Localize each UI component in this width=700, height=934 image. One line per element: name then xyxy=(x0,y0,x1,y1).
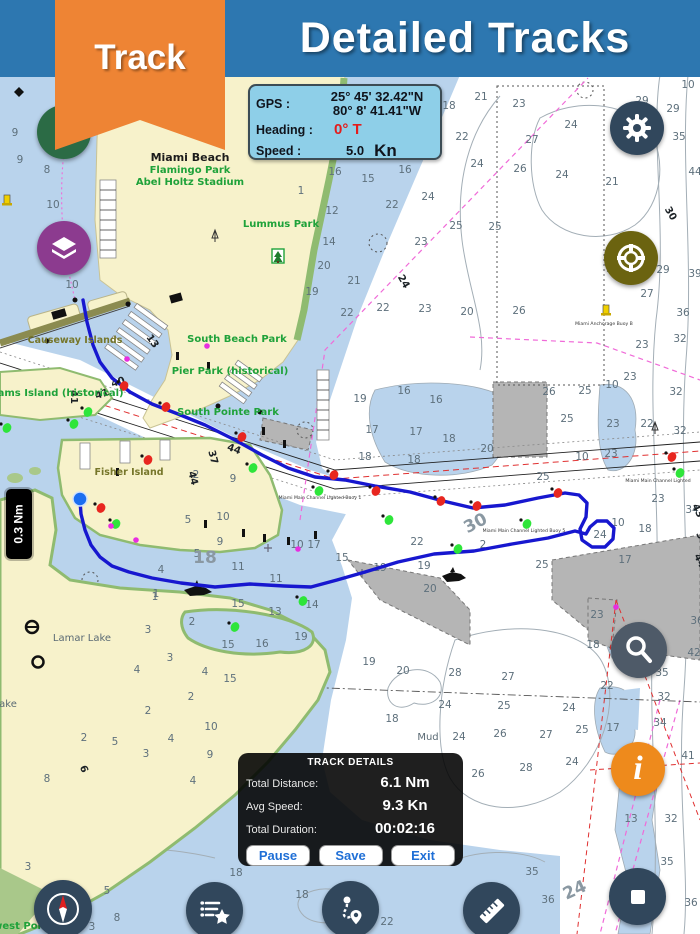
svg-text:23: 23 xyxy=(512,98,525,110)
svg-text:8: 8 xyxy=(44,164,51,176)
svg-text:25: 25 xyxy=(560,413,573,425)
svg-text:18: 18 xyxy=(193,548,217,568)
svg-text:36: 36 xyxy=(690,615,700,627)
svg-text:South Beach Park: South Beach Park xyxy=(187,334,287,345)
heading-value: 0° T xyxy=(334,121,362,138)
svg-text:35: 35 xyxy=(525,866,538,878)
svg-text:10: 10 xyxy=(46,199,59,211)
route-pin-icon xyxy=(333,892,369,928)
gps-label: GPS : xyxy=(256,97,320,111)
distance-value: 6.1 Nm xyxy=(355,774,455,791)
svg-text:4: 4 xyxy=(158,564,165,576)
svg-text:22: 22 xyxy=(385,199,398,211)
svg-text:32: 32 xyxy=(657,691,670,703)
svg-text:Miami Main Channel Lighted Buo: Miami Main Channel Lighted Buoy 1 xyxy=(279,495,362,501)
svg-text:South Pointe Park: South Pointe Park xyxy=(177,407,279,418)
svg-text:22: 22 xyxy=(376,302,389,314)
svg-text:21: 21 xyxy=(605,176,618,188)
svg-text:18: 18 xyxy=(442,100,455,112)
svg-text:3: 3 xyxy=(143,748,150,760)
svg-text:27: 27 xyxy=(501,671,514,683)
exit-button[interactable]: Exit xyxy=(391,845,455,866)
svg-text:17: 17 xyxy=(618,554,631,566)
compass-button[interactable] xyxy=(34,880,92,934)
track-list-button[interactable] xyxy=(186,882,243,934)
svg-text:10: 10 xyxy=(605,379,618,391)
svg-text:24: 24 xyxy=(565,756,579,768)
svg-text:15: 15 xyxy=(335,552,348,564)
svg-text:2: 2 xyxy=(188,691,195,703)
svg-text:24: 24 xyxy=(593,529,607,541)
svg-text:16: 16 xyxy=(429,394,443,406)
svg-text:18: 18 xyxy=(229,867,242,879)
ribbon-label: Track xyxy=(55,38,225,78)
info-icon: i xyxy=(633,752,642,786)
svg-text:Miami Main Channel Lighted: Miami Main Channel Lighted xyxy=(625,478,690,484)
svg-text:20: 20 xyxy=(460,306,473,318)
svg-text:24: 24 xyxy=(564,119,578,131)
svg-text:2: 2 xyxy=(81,732,88,744)
heading-label: Heading : xyxy=(256,123,320,137)
svg-text:10: 10 xyxy=(204,721,217,733)
svg-text:32: 32 xyxy=(664,813,677,825)
svg-text:22: 22 xyxy=(455,131,468,143)
svg-text:26: 26 xyxy=(493,728,507,740)
svg-text:24: 24 xyxy=(452,731,466,743)
svg-text:25: 25 xyxy=(449,220,462,232)
stop-square-icon xyxy=(620,879,656,915)
svg-text:29: 29 xyxy=(666,103,679,115)
duration-value: 00:02:16 xyxy=(355,820,455,837)
svg-text:10: 10 xyxy=(216,511,229,523)
svg-text:23: 23 xyxy=(604,448,617,460)
measure-button[interactable] xyxy=(463,882,520,934)
gear-icon xyxy=(620,111,654,145)
svg-text:23: 23 xyxy=(590,609,603,621)
svg-text:21: 21 xyxy=(474,91,487,103)
layers-icon xyxy=(47,231,81,265)
svg-text:5: 5 xyxy=(104,885,111,897)
svg-text:26: 26 xyxy=(542,386,556,398)
svg-text:9: 9 xyxy=(207,749,214,761)
svg-text:19: 19 xyxy=(353,393,366,405)
svg-text:44: 44 xyxy=(688,166,700,178)
svg-text:14: 14 xyxy=(322,236,336,248)
svg-text:23: 23 xyxy=(606,418,619,430)
speed-value: 5.0 xyxy=(346,143,364,158)
svg-text:Flamingo Park: Flamingo Park xyxy=(150,165,231,176)
svg-text:15: 15 xyxy=(231,598,244,610)
svg-text:25: 25 xyxy=(575,724,588,736)
svg-text:9: 9 xyxy=(17,154,24,166)
svg-text:35: 35 xyxy=(672,131,685,143)
mob-button[interactable] xyxy=(604,231,658,285)
svg-text:5: 5 xyxy=(185,514,192,526)
svg-text:4: 4 xyxy=(134,664,141,676)
svg-text:Miami Anchorage Buoy B: Miami Anchorage Buoy B xyxy=(575,321,633,327)
page-title: Detailed Tracks xyxy=(230,0,700,77)
svg-text:Fisher Island: Fisher Island xyxy=(94,467,163,478)
svg-text:Abel Holtz Stadium: Abel Holtz Stadium xyxy=(136,177,244,188)
svg-text:16: 16 xyxy=(328,166,342,178)
svg-text:35: 35 xyxy=(660,856,673,868)
track-details-panel: TRACK DETAILS Total Distance: 6.1 Nm Avg… xyxy=(238,753,463,866)
svg-text:36: 36 xyxy=(684,897,698,909)
svg-text:26: 26 xyxy=(471,768,485,780)
svg-text:15: 15 xyxy=(221,639,234,651)
svg-text:4: 4 xyxy=(190,775,197,787)
svg-text:12: 12 xyxy=(325,205,338,217)
svg-text:8: 8 xyxy=(44,773,51,785)
panel-title: TRACK DETAILS xyxy=(246,757,455,768)
svg-text:15: 15 xyxy=(223,673,236,685)
svg-text:36: 36 xyxy=(541,894,555,906)
small-island xyxy=(29,467,41,475)
svg-text:22: 22 xyxy=(410,536,423,548)
svg-text:17: 17 xyxy=(409,426,422,438)
svg-text:42: 42 xyxy=(687,647,700,659)
svg-text:25: 25 xyxy=(535,559,548,571)
svg-text:Causeway Islands: Causeway Islands xyxy=(28,335,123,346)
svg-text:18: 18 xyxy=(295,889,308,901)
gps-coordinates: 25° 45' 32.42"N80° 8' 41.41"W xyxy=(320,90,434,118)
svg-text:22: 22 xyxy=(340,307,353,319)
svg-text:26: 26 xyxy=(512,305,526,317)
svg-text:23: 23 xyxy=(635,339,648,351)
svg-text:Mud: Mud xyxy=(417,732,438,743)
svg-text:4: 4 xyxy=(202,666,209,678)
svg-text:5: 5 xyxy=(112,736,119,748)
settings-button[interactable] xyxy=(610,101,664,155)
svg-text:23: 23 xyxy=(418,303,431,315)
svg-text:20: 20 xyxy=(396,665,409,677)
scale-indicator: 0.3 Nm xyxy=(6,489,32,559)
svg-text:1: 1 xyxy=(298,185,305,197)
svg-text:18: 18 xyxy=(442,433,455,445)
svg-text:29: 29 xyxy=(656,264,669,276)
gps-status-panel: GPS : 25° 45' 32.42"N80° 8' 41.41"W Head… xyxy=(248,84,442,160)
svg-text:9: 9 xyxy=(12,127,19,139)
svg-text:18: 18 xyxy=(385,713,398,725)
svg-text:23: 23 xyxy=(623,371,636,383)
svg-text:19: 19 xyxy=(305,286,318,298)
svg-text:18: 18 xyxy=(638,523,651,535)
svg-text:Pier Park (historical): Pier Park (historical) xyxy=(172,366,289,377)
life-ring-icon xyxy=(613,240,649,276)
svg-text:28: 28 xyxy=(519,762,532,774)
info-button[interactable]: i xyxy=(611,742,665,796)
svg-text:18: 18 xyxy=(586,639,599,651)
svg-text:19: 19 xyxy=(362,656,375,668)
svg-text:20: 20 xyxy=(423,583,436,595)
svg-text:3: 3 xyxy=(89,921,96,933)
svg-text:4: 4 xyxy=(168,733,175,745)
svg-text:23: 23 xyxy=(414,236,427,248)
distance-label: Total Distance: xyxy=(246,778,355,790)
magnifier-icon xyxy=(622,633,656,667)
svg-text:9: 9 xyxy=(230,473,237,485)
svg-text:24: 24 xyxy=(421,191,435,203)
current-position-marker xyxy=(73,492,87,506)
svg-text:2: 2 xyxy=(189,616,196,628)
ruler-icon xyxy=(473,892,511,930)
svg-text:3: 3 xyxy=(145,624,152,636)
svg-text:25: 25 xyxy=(497,700,510,712)
svg-text:27: 27 xyxy=(525,134,538,146)
svg-text:Lummus Park: Lummus Park xyxy=(243,219,320,230)
svg-text:22: 22 xyxy=(380,916,393,928)
avg-speed-value: 9.3 Kn xyxy=(355,797,455,814)
compass-icon xyxy=(43,889,83,929)
svg-text:15: 15 xyxy=(361,173,374,185)
svg-text:32: 32 xyxy=(673,425,686,437)
scale-value: 0.3 Nm xyxy=(12,504,26,543)
svg-text:20: 20 xyxy=(317,260,330,272)
svg-text:18: 18 xyxy=(358,451,371,463)
svg-text:25: 25 xyxy=(488,221,501,233)
svg-text:9: 9 xyxy=(217,536,224,548)
svg-text:25: 25 xyxy=(578,385,591,397)
svg-text:32: 32 xyxy=(669,386,682,398)
svg-text:26: 26 xyxy=(513,163,527,175)
svg-text:Lamar Lake: Lamar Lake xyxy=(53,633,111,644)
svg-text:22: 22 xyxy=(640,418,653,430)
svg-text:17: 17 xyxy=(606,722,619,734)
svg-text:34: 34 xyxy=(653,717,667,729)
list-star-icon xyxy=(197,893,233,929)
svg-text:Sams Island (historical): Sams Island (historical) xyxy=(0,388,124,399)
small-island xyxy=(7,473,23,483)
svg-text:10: 10 xyxy=(65,279,78,291)
layers-button[interactable] xyxy=(37,221,91,275)
svg-text:21: 21 xyxy=(347,275,360,287)
svg-text:18: 18 xyxy=(407,454,420,466)
svg-text:13: 13 xyxy=(268,606,281,618)
svg-text:24: 24 xyxy=(470,158,484,170)
svg-text:28: 28 xyxy=(448,667,461,679)
svg-text:25: 25 xyxy=(536,471,549,483)
svg-text:17: 17 xyxy=(365,424,378,436)
svg-text:22: 22 xyxy=(600,680,613,692)
speed-unit: Kn xyxy=(374,141,397,161)
routes-button[interactable] xyxy=(322,881,379,934)
svg-text:2: 2 xyxy=(145,705,152,717)
svg-text:ake: ake xyxy=(0,699,17,710)
svg-text:3: 3 xyxy=(25,861,32,873)
svg-text:16: 16 xyxy=(397,385,411,397)
svg-text:36: 36 xyxy=(676,307,690,319)
svg-text:16: 16 xyxy=(398,164,412,176)
svg-text:11: 11 xyxy=(231,561,244,573)
svg-text:19: 19 xyxy=(417,560,430,572)
svg-text:10: 10 xyxy=(575,451,588,463)
stop-button[interactable] xyxy=(609,868,666,925)
svg-text:17: 17 xyxy=(307,539,320,551)
marine-navigation-app: 9981010182123222427242624212929351044293… xyxy=(0,0,700,934)
avg-speed-label: Avg Speed: xyxy=(246,801,355,813)
svg-text:Miami Main Channel Lighted Buo: Miami Main Channel Lighted Buoy 5 xyxy=(483,528,566,534)
svg-text:27: 27 xyxy=(539,729,552,741)
search-button[interactable] xyxy=(611,622,667,678)
svg-text:24: 24 xyxy=(555,169,569,181)
svg-text:39: 39 xyxy=(688,268,700,280)
svg-text:3: 3 xyxy=(167,652,174,664)
svg-text:24: 24 xyxy=(438,699,452,711)
svg-text:23: 23 xyxy=(651,493,664,505)
svg-text:20: 20 xyxy=(480,443,493,455)
svg-text:1: 1 xyxy=(153,588,160,600)
save-button[interactable]: Save xyxy=(319,845,383,866)
svg-text:19: 19 xyxy=(294,631,307,643)
svg-text:16: 16 xyxy=(255,638,269,650)
duration-label: Total Duration: xyxy=(246,824,355,836)
svg-text:11: 11 xyxy=(269,573,282,585)
svg-text:13: 13 xyxy=(624,813,637,825)
svg-text:32: 32 xyxy=(673,333,686,345)
pause-button[interactable]: Pause xyxy=(246,845,310,866)
speed-label: Speed : xyxy=(256,144,320,158)
svg-text:8: 8 xyxy=(114,912,121,924)
svg-text:41: 41 xyxy=(681,750,694,762)
svg-text:Miami Beach: Miami Beach xyxy=(151,151,230,164)
svg-text:27: 27 xyxy=(640,288,653,300)
svg-text:24: 24 xyxy=(562,702,576,714)
svg-text:10: 10 xyxy=(681,79,694,91)
